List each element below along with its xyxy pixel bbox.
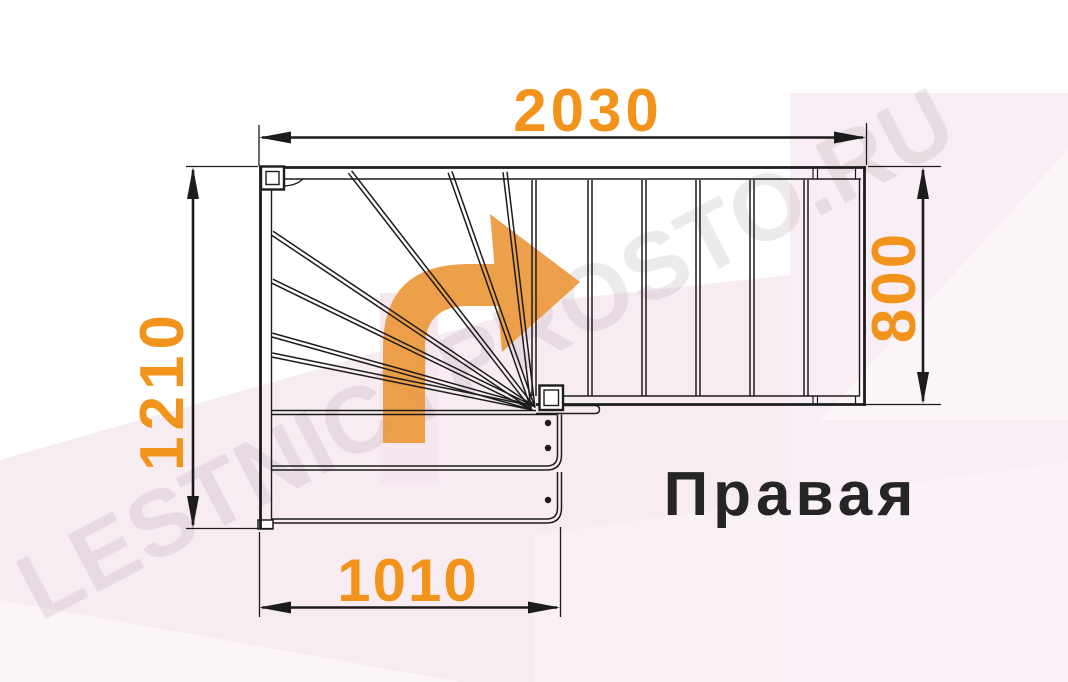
stair-type-label: Правая: [651, 464, 931, 526]
newel-post-top-left: [261, 167, 303, 190]
dimension-value-left: 1210: [132, 280, 196, 500]
newel-post-corner: [540, 386, 564, 411]
dimension-value-top: 2030: [498, 81, 678, 141]
dimension-value-bottom: 1010: [318, 551, 498, 611]
dimension-value-right: 800: [864, 207, 928, 367]
stair-plan-diagram: LESTNICYPROSTO.RU: [0, 0, 1068, 682]
